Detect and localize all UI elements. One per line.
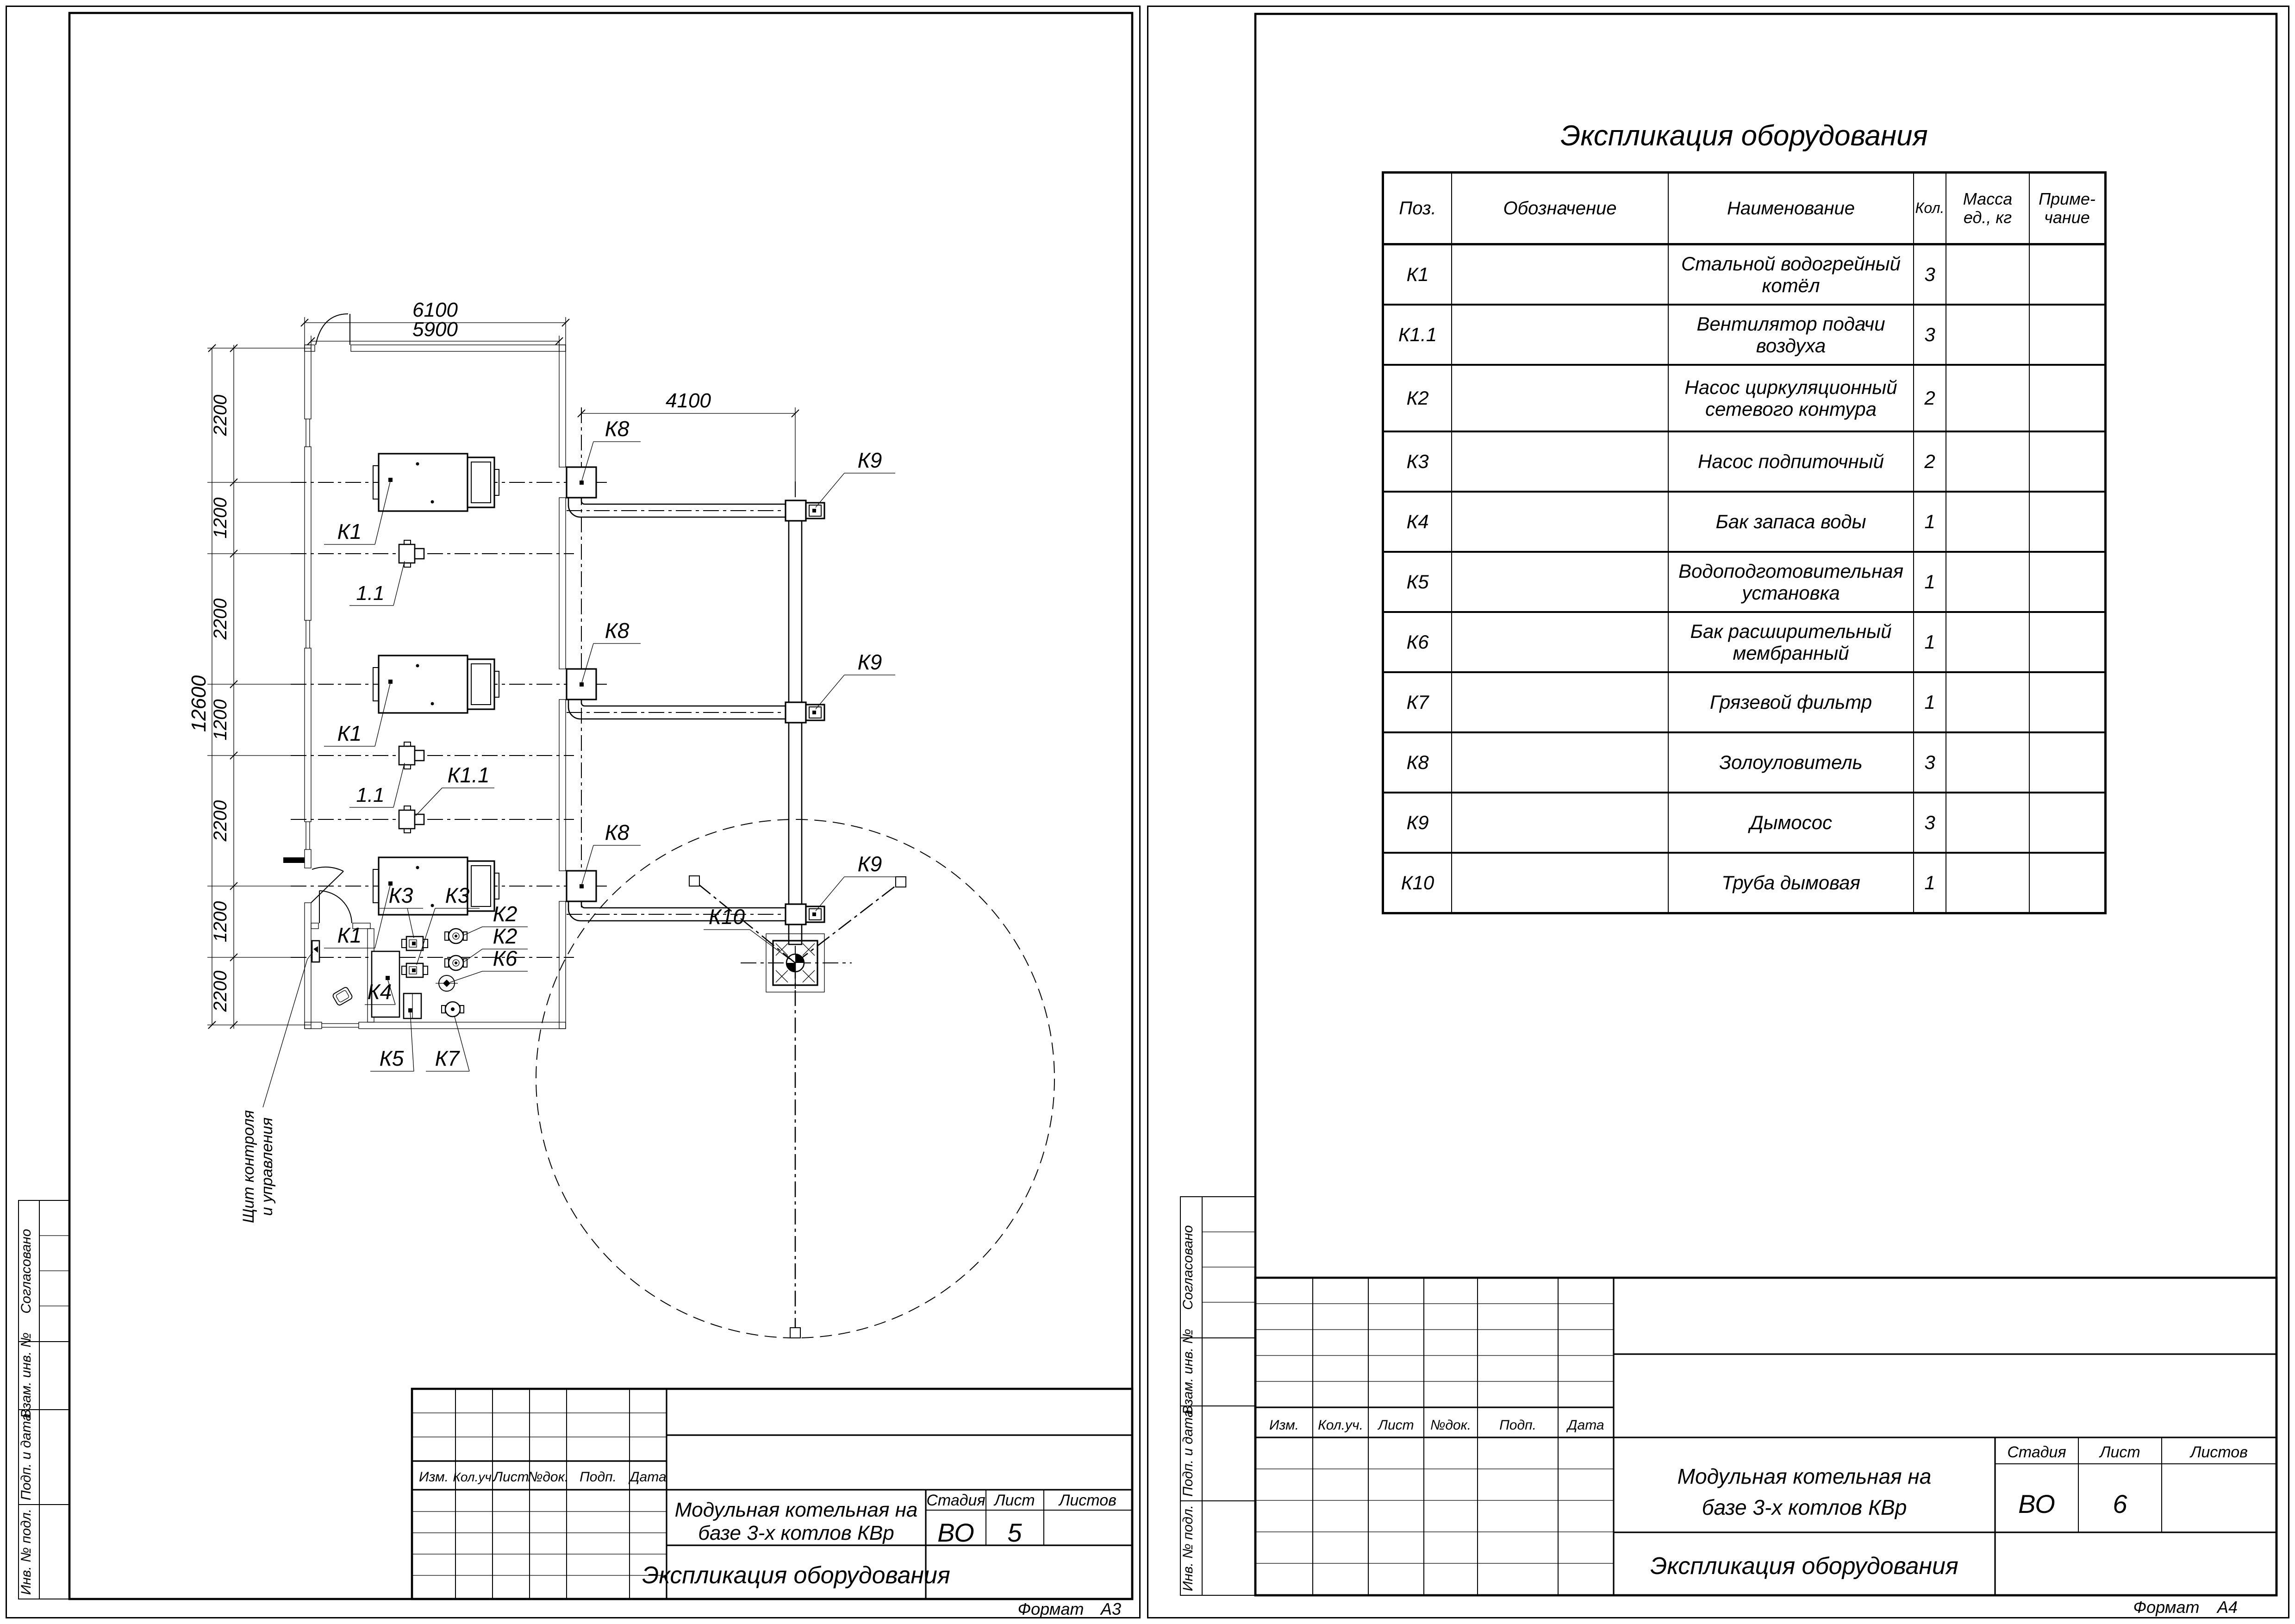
cell-mass	[1946, 613, 2029, 671]
a4-doc-title: Экспликация оборудования	[1650, 1553, 1958, 1580]
equipment-table-row: К2Насос циркуляционный сетевого контура2	[1384, 364, 2104, 431]
label-chimney: К10	[709, 905, 745, 929]
a3-rev-izm: Изм.	[419, 1469, 449, 1485]
a3-title-block: Изм. Кол.уч. Лист №док. Подп. Дата Модул…	[412, 1389, 1132, 1618]
dim-4100: 4100	[666, 389, 711, 412]
cell-designation	[1451, 245, 1668, 304]
a3-rev-list: Лист	[492, 1469, 529, 1485]
label-ash-3: К8	[605, 820, 630, 844]
fan-2	[399, 742, 424, 769]
label-filter: К7	[435, 1046, 460, 1070]
label-exhauster-2: К9	[858, 650, 882, 674]
cell-qty: 3	[1913, 306, 1946, 364]
cell-note	[2029, 493, 2104, 551]
a4-sheet-label: Лист	[2099, 1443, 2140, 1461]
a3-rev-data: Дата	[628, 1469, 666, 1485]
cell-note	[2029, 793, 2104, 852]
cell-note	[2029, 613, 2104, 671]
a3-margin-repl-inv: Взам. инв. №	[19, 1332, 34, 1418]
label-fan-short-1: 1.1	[356, 582, 384, 605]
col-header-mass: Масса ед., кг	[1946, 174, 2029, 243]
drawing-canvas: Согласовано Взам. инв. № Подп. и дата Ин…	[0, 0, 2295, 1624]
a4-stage-label: Стадия	[2007, 1443, 2066, 1461]
cell-qty: 2	[1913, 432, 1946, 491]
fan-3	[399, 806, 424, 833]
cell-name: Водоподготовительная установка	[1668, 553, 1913, 611]
a3-project-title-2: базе 3-х котлов КВр	[698, 1522, 894, 1544]
a4-margin-approved: Согласовано	[1180, 1225, 1196, 1310]
label-boiler-1: К1	[337, 519, 362, 543]
cell-designation	[1451, 733, 1668, 792]
a4-format-value: А4	[2216, 1598, 2238, 1617]
cell-name: Насос циркуляционный сетевого контура	[1668, 366, 1913, 431]
a3-project-title-1: Модульная котельная на	[675, 1499, 918, 1521]
label-exhauster-1: К9	[858, 448, 882, 472]
cell-designation	[1451, 553, 1668, 611]
a4-title-block: Изм. Кол.уч. Лист №док. Подп. Дата Модул…	[1255, 1278, 2276, 1617]
cell-pos: К1	[1384, 245, 1451, 304]
equipment-table-row: К1.1Вентилятор подачи воздуха3	[1384, 304, 2104, 364]
cell-qty: 3	[1913, 245, 1946, 304]
cell-qty: 2	[1913, 366, 1946, 431]
a4-rev-izm: Изм.	[1269, 1418, 1299, 1433]
a4-rev-ndok: №док.	[1430, 1418, 1471, 1433]
cell-name: Бак расширительный мембранный	[1668, 613, 1913, 671]
boiler-1	[373, 454, 499, 511]
cell-pos: К9	[1384, 793, 1451, 852]
cell-pos: К1.1	[1384, 306, 1451, 364]
a4-margin-inv-orig: Инв. № подл.	[1180, 1505, 1196, 1591]
cell-pos: К2	[1384, 366, 1451, 431]
cell-note	[2029, 245, 2104, 304]
equipment-table: Поз. Обозначение Наименование Кол. Масса…	[1382, 171, 2107, 914]
cell-name: Золоуловитель	[1668, 733, 1913, 792]
label-panel-1: Щит контроля	[240, 1110, 257, 1223]
a4-rev-koluch: Кол.уч.	[1318, 1418, 1363, 1433]
floor-plan: 6100 5900 4100	[187, 299, 1054, 1338]
a3-stage-value: ВО	[937, 1518, 974, 1547]
dim-seg-3: 2200	[210, 599, 231, 640]
equipment-table-row: К7Грязевой фильтр1	[1384, 671, 2104, 731]
cell-note	[2029, 432, 2104, 491]
label-pump-net-1: К2	[493, 902, 518, 926]
equipment-table-row: К5Водоподготовительная установка1	[1384, 551, 2104, 611]
cell-pos: К6	[1384, 613, 1451, 671]
equipment-table-row: К4Бак запаса воды1	[1384, 491, 2104, 551]
cell-mass	[1946, 733, 2029, 792]
equipment-table-row: К3Насос подпиточный2	[1384, 431, 2104, 491]
col-header-qty: Кол.	[1913, 174, 1946, 243]
cell-mass	[1946, 432, 2029, 491]
cell-note	[2029, 306, 2104, 364]
a4-project-title-1: Модульная котельная на	[1678, 1464, 1932, 1488]
cell-qty: 1	[1913, 854, 1946, 912]
equipment-table-title: Экспликация оборудования	[1382, 119, 2107, 152]
cell-qty: 3	[1913, 733, 1946, 792]
cell-note	[2029, 366, 2104, 431]
equipment-table-row: К8Золоуловитель3	[1384, 731, 2104, 792]
cell-qty: 1	[1913, 493, 1946, 551]
label-fan-short-2: 1.1	[356, 784, 384, 806]
dim-5900: 5900	[412, 318, 458, 341]
a4-sheets-label: Листов	[2189, 1443, 2248, 1461]
a3-rev-koluch: Кол.уч.	[453, 1470, 495, 1484]
equipment-table-row: К9Дымосос3	[1384, 792, 2104, 852]
cell-designation	[1451, 493, 1668, 551]
equipment-table-header: Поз. Обозначение Наименование Кол. Масса…	[1384, 174, 2104, 245]
boiler-2	[373, 656, 499, 713]
boilers	[373, 454, 499, 915]
dim-seg-6: 1200	[210, 901, 231, 943]
cell-mass	[1946, 245, 2029, 304]
a3-format-label: Формат	[1018, 1599, 1084, 1618]
cell-designation	[1451, 673, 1668, 731]
cell-name: Грязевой фильтр	[1668, 673, 1913, 731]
dim-seg-2: 1200	[210, 498, 231, 539]
cell-mass	[1946, 553, 2029, 611]
cell-qty: 1	[1913, 613, 1946, 671]
cell-designation	[1451, 366, 1668, 431]
cell-note	[2029, 673, 2104, 731]
cell-mass	[1946, 493, 2029, 551]
label-fan: К1.1	[447, 763, 489, 787]
cell-name: Бак запаса воды	[1668, 493, 1913, 551]
label-ash-1: К8	[605, 417, 630, 441]
cell-pos: К5	[1384, 553, 1451, 611]
filter-k7	[442, 1002, 464, 1017]
a3-format-value: А3	[1100, 1599, 1121, 1618]
sink	[332, 987, 353, 1006]
cell-pos: К4	[1384, 493, 1451, 551]
a4-margin-blocks: Согласовано Взам. инв. № Подп. и дата Ин…	[1180, 1197, 1255, 1595]
cell-note	[2029, 854, 2104, 912]
fan-1	[399, 540, 424, 567]
cell-mass	[1946, 793, 2029, 852]
cell-designation	[1451, 793, 1668, 852]
a3-doc-title: Экспликация оборудования	[642, 1562, 950, 1589]
a3-sheet-label: Лист	[993, 1492, 1035, 1509]
cell-pos: К10	[1384, 854, 1451, 912]
cell-name: Вентилятор подачи воздуха	[1668, 306, 1913, 364]
cell-note	[2029, 553, 2104, 611]
col-header-designation: Обозначение	[1451, 174, 1668, 243]
a4-rev-list: Лист	[1377, 1418, 1414, 1433]
control-panel	[312, 941, 319, 962]
label-pump-net-2: К2	[493, 924, 518, 948]
cell-designation	[1451, 432, 1668, 491]
label-boiler-3: К1	[337, 923, 362, 947]
label-exp-tank: К6	[493, 946, 518, 970]
label-exhauster-3: К9	[858, 852, 882, 876]
label-boiler-2: К1	[337, 721, 362, 745]
pump-k3-2	[402, 963, 428, 977]
cell-qty: 1	[1913, 673, 1946, 731]
a3-rev-podp: Подп.	[580, 1469, 617, 1485]
a4-stage-value: ВО	[2018, 1489, 2055, 1518]
label-water-prep: К5	[380, 1046, 404, 1070]
pump-k2-1	[445, 929, 467, 943]
a3-sheet-number: 5	[1007, 1518, 1022, 1547]
door-symbols	[283, 314, 352, 923]
a3-frame: Согласовано Взам. инв. № Подп. и дата Ин…	[19, 13, 1132, 1599]
cell-note	[2029, 733, 2104, 792]
dim-seg-4: 1200	[210, 700, 231, 741]
label-ash-2: К8	[605, 618, 630, 643]
flue-system	[536, 467, 1054, 1338]
a4-rev-podp: Подп.	[1499, 1418, 1536, 1433]
cell-name: Насос подпиточный	[1668, 432, 1913, 491]
label-pump-feed-1: К3	[389, 883, 413, 907]
cell-qty: 1	[1913, 553, 1946, 611]
label-tank: К4	[368, 980, 392, 1004]
dim-seg-7: 2200	[210, 971, 231, 1012]
equipment-table-row: К10Труба дымовая1	[1384, 852, 2104, 912]
a4-margin-repl-inv: Взам. инв. №	[1180, 1329, 1196, 1415]
a4-sheet-number: 6	[2113, 1489, 2127, 1518]
a4-project-title-2: базе 3-х котлов КВр	[1702, 1495, 1907, 1519]
cell-mass	[1946, 673, 2029, 731]
cell-qty: 3	[1913, 793, 1946, 852]
a3-margin-sign-date: Подп. и дата	[19, 1413, 34, 1500]
col-header-name: Наименование	[1668, 174, 1913, 243]
a3-stage-label: Стадия	[926, 1492, 985, 1509]
label-panel-2: и управления	[258, 1118, 276, 1216]
cell-designation	[1451, 613, 1668, 671]
cell-name: Труба дымовая	[1668, 854, 1913, 912]
label-pump-feed-2: К3	[445, 883, 470, 907]
a4-format-label: Формат	[2133, 1598, 2200, 1617]
a3-margin-inv-orig: Инв. № подл.	[19, 1509, 34, 1595]
equipment-room	[312, 929, 467, 1018]
equipment-table-row: К6Бак расширительный мембранный1	[1384, 611, 2104, 671]
a4-margin-sign-date: Подп. и дата	[1180, 1410, 1196, 1497]
cell-mass	[1946, 366, 2029, 431]
cell-pos: К8	[1384, 733, 1451, 792]
dim-seg-5: 2200	[210, 800, 231, 842]
a3-rev-ndok: №док.	[528, 1469, 568, 1485]
a3-margin-approved: Согласовано	[19, 1229, 34, 1314]
a3-margin-blocks: Согласовано Взам. инв. № Подп. и дата Ин…	[19, 1200, 69, 1599]
cell-designation	[1451, 306, 1668, 364]
col-header-note: Приме- чание	[2029, 174, 2104, 243]
a3-sheets-label: Листов	[1058, 1492, 1116, 1509]
cell-mass	[1946, 854, 2029, 912]
cell-name: Дымосос	[1668, 793, 1913, 852]
cell-name: Стальной водогрейный котёл	[1668, 245, 1913, 304]
dim-seg-1: 2200	[210, 395, 231, 437]
exp-tank-k6	[436, 975, 458, 991]
col-header-pos: Поз.	[1384, 174, 1451, 243]
cell-mass	[1946, 306, 2029, 364]
equipment-table-row: К1Стальной водогрейный котёл3	[1384, 245, 2104, 304]
cell-pos: К3	[1384, 432, 1451, 491]
dim-12600: 12600	[187, 675, 210, 732]
cell-designation	[1451, 854, 1668, 912]
a4-rev-data: Дата	[1566, 1418, 1604, 1433]
cell-pos: К7	[1384, 673, 1451, 731]
